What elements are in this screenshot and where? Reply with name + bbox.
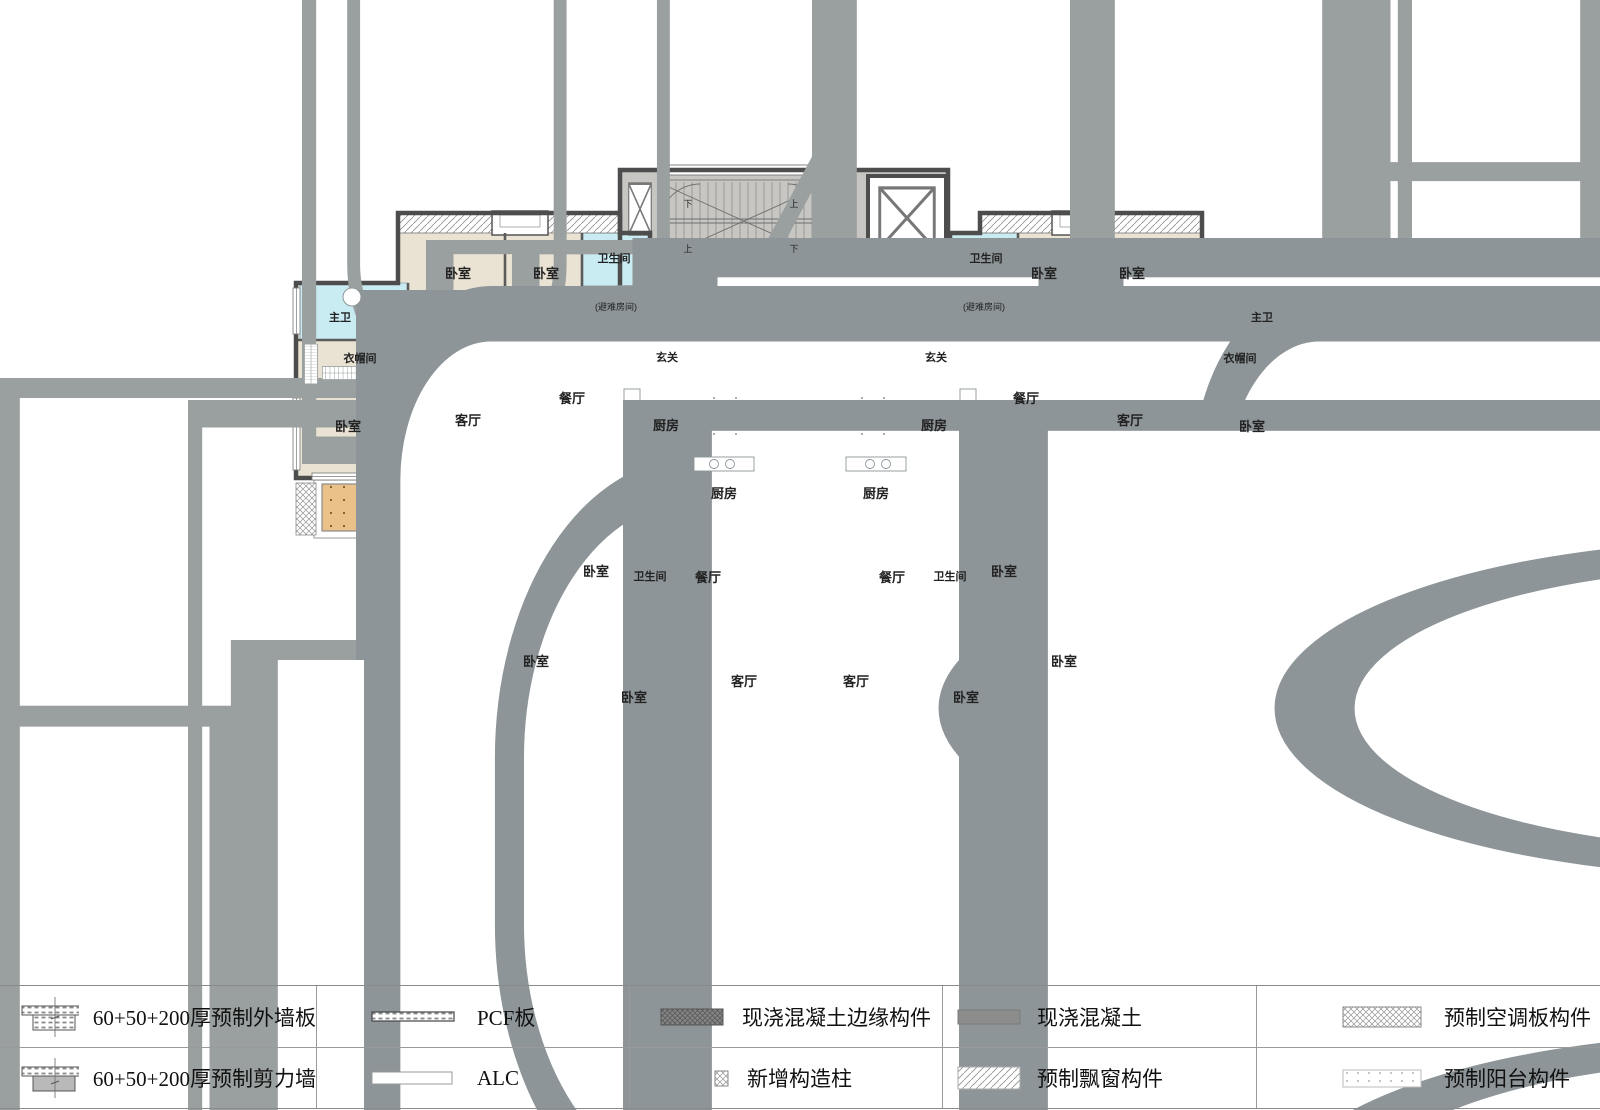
room-label-bedroom: 卧室: [953, 690, 979, 705]
stair-direction-label: 上: [789, 199, 798, 209]
room-label-living: 客厅: [1117, 413, 1143, 428]
shear-wall-section-icon: [20, 1056, 79, 1100]
room-label-living: 客厅: [843, 674, 869, 689]
legend-label: 现浇混凝土边缘构件: [742, 1002, 931, 1032]
legend-label: 预制空调板构件: [1444, 1002, 1591, 1032]
room-label-bathroom: 卫生间: [934, 569, 967, 583]
room-label-kitchen: 厨房: [653, 418, 679, 433]
stair-direction-label: 上: [683, 244, 692, 254]
precast-bay-window-icon: [957, 1066, 1021, 1090]
room-label-dining: 餐厅: [558, 391, 585, 406]
room-label-bedroom: 卧室: [583, 564, 609, 579]
room-label-refuge: (避难房间): [963, 301, 1005, 312]
room-label-dining: 餐厅: [694, 570, 721, 585]
room-label-cloakroom: 衣帽间: [344, 351, 377, 365]
room-label-bedroom: 卧室: [621, 690, 647, 705]
room-label-bathroom: 卫生间: [970, 251, 1003, 265]
legend-label: 60+50+200厚预制剪力墙: [93, 1063, 316, 1093]
legend-item-ac-panel: 预制空调板构件: [1257, 986, 1600, 1048]
legend-label: ALC: [477, 1066, 519, 1091]
room-label-living: 客厅: [455, 413, 481, 428]
legend-item-alc: ALC: [317, 1048, 630, 1108]
legend-label: PCF板: [477, 1002, 535, 1032]
room-label-bedroom: 卧室: [1031, 266, 1057, 281]
room-label-bedroom: 卧室: [1119, 266, 1145, 281]
stair-direction-label: 下: [683, 199, 692, 209]
precast-ac-panel-icon: [1342, 1006, 1422, 1028]
legend-item-concrete: 现浇混凝土: [943, 986, 1257, 1048]
room-label-living: 客厅: [731, 674, 757, 689]
room-label-master-bathroom: 主卫: [329, 310, 351, 324]
legend: 60+50+200厚预制外墙板 60+50+200厚预制剪力墙 PCF板 ALC…: [0, 985, 1600, 1109]
room-label-entry: 玄关: [656, 350, 678, 364]
kitchen-counter: [694, 457, 754, 471]
legend-label: 现浇混凝土: [1037, 1002, 1142, 1032]
room-label-master-bathroom: 主卫: [1251, 310, 1273, 324]
legend-item-shear-wall: 60+50+200厚预制剪力墙: [0, 1048, 317, 1108]
exterior-wall-section-icon: [20, 995, 79, 1039]
cast-in-place-concrete-icon: [957, 1009, 1021, 1025]
room-label-bedroom: 卧室: [1239, 419, 1265, 434]
legend-label: 60+50+200厚预制外墙板: [93, 1002, 316, 1032]
room-label-bedroom: 卧室: [445, 266, 471, 281]
legend-item-edge-member: 现浇混凝土边缘构件: [630, 986, 943, 1048]
floor-plan-page: 卧室 卧室 卫生间 (避难房间) 主卫 衣帽间 卧室 客厅 餐厅 玄关 厨房 卫…: [0, 0, 1600, 1110]
room-label-kitchen: 厨房: [921, 418, 947, 433]
room-label-kitchen: 厨房: [711, 486, 737, 501]
stair-direction-label: 下: [789, 244, 798, 254]
room-label-bathroom: 卫生间: [598, 251, 631, 265]
precast-balcony-icon: [1342, 1069, 1422, 1088]
room-label-dining: 餐厅: [878, 570, 905, 585]
room-label-bedroom: 卧室: [335, 419, 361, 434]
room-label-kitchen: 厨房: [863, 486, 889, 501]
legend-item-balcony: 预制阳台构件: [1257, 1048, 1600, 1108]
room-label-bedroom: 卧室: [991, 564, 1017, 579]
wardrobe-icon: [304, 344, 317, 384]
floor-plan-drawing: 卧室 卧室 卫生间 (避难房间) 主卫 衣帽间 卧室 客厅 餐厅 玄关 厨房 卫…: [0, 0, 1600, 1110]
room-label-dining: 餐厅: [1012, 391, 1039, 406]
room-label-refuge: (避难房间): [595, 301, 637, 312]
room-label-bedroom: 卧室: [1051, 654, 1077, 669]
room-label-entry: 玄关: [925, 350, 947, 364]
room-label-bedroom: 卧室: [533, 266, 559, 281]
legend-label: 预制飘窗构件: [1037, 1063, 1163, 1093]
room-label-bedroom: 卧室: [523, 654, 549, 669]
legend-item-bay-window: 预制飘窗构件: [943, 1048, 1257, 1108]
legend-item-new-column: 新增构造柱: [630, 1048, 943, 1108]
kitchen-counter: [846, 457, 906, 471]
legend-item-pcf: PCF板: [317, 986, 630, 1048]
sink-icon: [343, 288, 361, 306]
alc-panel-icon: [371, 1071, 455, 1085]
legend-item-exterior-wall: 60+50+200厚预制外墙板: [0, 986, 317, 1048]
pcf-panel-icon: [371, 1011, 455, 1023]
room-label-bathroom: 卫生间: [634, 569, 667, 583]
duct-shaft-icon: [629, 184, 652, 235]
new-structural-column-icon: [714, 1070, 729, 1087]
legend-label: 新增构造柱: [747, 1063, 852, 1093]
legend-label: 预制阳台构件: [1444, 1063, 1570, 1093]
room-label-cloakroom: 衣帽间: [1224, 351, 1257, 365]
cast-in-place-edge-member-icon: [660, 1008, 724, 1026]
